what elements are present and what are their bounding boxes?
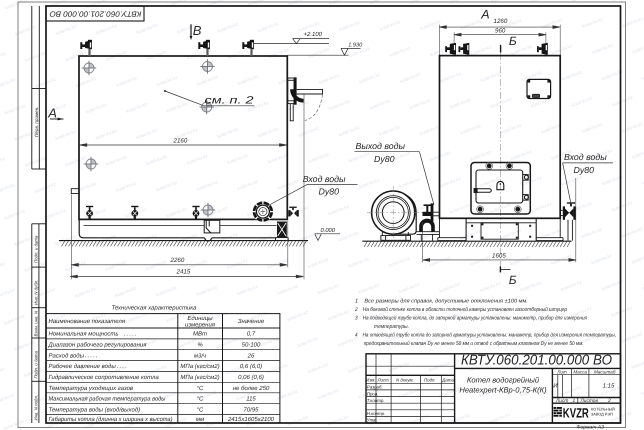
svg-text:4 На отводящей трубе котла: 4 На отводящей трубе котла до запорной а… (355, 333, 616, 339)
svg-text:предохранительный клапан Dy н: предохранительный клапан Dy не менее 50 … (364, 341, 584, 347)
svg-text:Н.контр.: Н.контр. (367, 411, 386, 416)
svg-text:Изм.: Изм. (366, 378, 375, 383)
svg-text:не более 250: не более 250 (233, 385, 270, 392)
svg-text:А: А (47, 105, 57, 120)
svg-text:Температура уходящих газов: Температура уходящих газов (49, 385, 134, 392)
svg-text:0,06 (0,6): 0,06 (0,6) (238, 374, 264, 381)
svg-text:Лист: Лист (555, 398, 568, 404)
svg-text:Лит: Лит (556, 369, 567, 374)
svg-text:Утв.: Утв. (367, 418, 377, 423)
svg-text:Dy80: Dy80 (574, 165, 595, 175)
svg-text:Т.контр.: Т.контр. (367, 398, 385, 403)
svg-text:Выход воды: Выход воды (356, 141, 406, 151)
svg-text:2260: 2260 (170, 257, 185, 264)
svg-text:°С: °С (197, 396, 204, 403)
svg-text:Максимальная рабочая температу: Максимальная рабочая температура воды (49, 396, 167, 403)
svg-text:°С: °С (197, 385, 204, 392)
svg-text:960: 960 (495, 27, 506, 34)
svg-text:Dy80: Dy80 (374, 154, 395, 164)
svg-text:Взам. инв. N: Взам. инв. N (34, 310, 39, 336)
svg-text:Дата: Дата (441, 378, 454, 383)
svg-text:КОТЕЛЬНЫЙ: КОТЕЛЬНЫЙ (591, 407, 615, 412)
svg-text:N докум.: N докум. (396, 378, 414, 383)
svg-text:KVZR: KVZR (563, 405, 589, 420)
svg-text:И: И (553, 383, 558, 390)
svg-text:Габариты котла (длинна х ширин: Габариты котла (длинна х ширина х высота… (49, 416, 173, 423)
svg-text:Подп.: Подп. (424, 378, 436, 383)
svg-text:Инв. N дубл.: Инв. N дубл. (34, 280, 39, 305)
svg-text:2 На боковой стенке котла в: 2 На боковой стенке котла в области топо… (354, 307, 567, 313)
svg-text:115: 115 (246, 396, 256, 403)
svg-text:50-100: 50-100 (242, 342, 261, 349)
svg-text:Единицы: Единицы (187, 315, 213, 322)
svg-text:м3/ч: м3/ч (194, 352, 206, 359)
svg-text:Формат А3: Формат А3 (577, 424, 605, 430)
svg-text:1.930: 1.930 (348, 42, 363, 48)
svg-text:Гидравлическое сопротивление к: Гидравлическое сопротивление котла (49, 374, 160, 381)
svg-text:0,7: 0,7 (247, 331, 256, 338)
svg-text:1:15: 1:15 (603, 383, 615, 390)
svg-text:26: 26 (247, 352, 255, 359)
svg-text:2415х1605х2100: 2415х1605х2100 (227, 416, 275, 423)
svg-text:ЗАВОД РЭП: ЗАВОД РЭП (591, 412, 613, 416)
svg-text:см. п. 2: см. п. 2 (205, 95, 254, 107)
svg-text:Значение: Значение (238, 318, 265, 325)
svg-text:3 На подводящей трубе кот: 3 На подводящей трубе котла, до запорной… (355, 316, 587, 322)
svg-text:Расход воды: Расход воды (49, 352, 85, 359)
svg-text:1 Все размеры для справок,: 1 Все размеры для справок, допустимые от… (355, 299, 528, 305)
svg-text:Номинальная мощность: Номинальная мощность (49, 331, 119, 338)
svg-text:°С: °С (197, 406, 204, 413)
svg-text:Масштаб: Масштаб (594, 369, 616, 374)
svg-text:В: В (193, 23, 202, 38)
svg-text:Heatexpert-КВр-0,75-К(К): Heatexpert-КВр-0,75-К(К) (459, 386, 547, 395)
svg-text:Техническая характеристика: Техническая характеристика (112, 305, 198, 312)
svg-text:0,6 (6,0): 0,6 (6,0) (240, 363, 262, 370)
svg-text:Подп. и дата: Подп. и дата (34, 235, 39, 263)
svg-text:мм: мм (196, 417, 204, 423)
svg-text:Рабочее давление воды: Рабочее давление воды (49, 363, 117, 370)
svg-text:Б: Б (509, 273, 517, 287)
svg-text:Б: Б (509, 34, 517, 48)
svg-text:А: А (480, 7, 489, 21)
svg-text:2415: 2415 (176, 269, 191, 276)
svg-text:1605: 1605 (492, 252, 506, 259)
svg-text:2160: 2160 (173, 138, 188, 145)
svg-text:+2.100: +2.100 (304, 31, 323, 38)
svg-text:Листов: Листов (580, 398, 599, 404)
svg-text:КВТУ.060.201.00.000 ВО: КВТУ.060.201.00.000 ВО (49, 9, 141, 18)
svg-text:2: 2 (607, 398, 611, 404)
svg-text:Температура воды (вход/выход): Температура воды (вход/выход) (49, 406, 141, 413)
svg-text:Подп. и дата: Подп. и дата (34, 350, 39, 378)
svg-text:Инв. N подл.: Инв. N подл. (34, 395, 39, 421)
svg-text:Наименование показателя: Наименование показателя (49, 318, 126, 325)
svg-text:0.000: 0.000 (321, 227, 336, 234)
svg-text:КВТУ.060.201.00.000 ВО: КВТУ.060.201.00.000 ВО (461, 353, 612, 369)
svg-text:МПа (кгс/см2): МПа (кгс/см2) (180, 363, 219, 370)
svg-text:Вход воды: Вход воды (303, 174, 346, 184)
svg-text:Разраб.: Разраб. (367, 385, 383, 390)
svg-text:%: % (197, 342, 203, 349)
svg-text:МВт: МВт (193, 331, 207, 338)
svg-text:Пров.: Пров. (367, 391, 379, 396)
svg-text:МПа (кгс/см2): МПа (кгс/см2) (180, 374, 219, 381)
svg-text:1260: 1260 (494, 18, 508, 25)
svg-text:Лист: Лист (377, 378, 390, 383)
svg-text:Вход воды: Вход воды (564, 152, 607, 162)
svg-text:Масса: Масса (573, 369, 587, 374)
svg-text:измерения: измерения (185, 323, 216, 329)
svg-text:Диапазон рабочего регулировани: Диапазон рабочего регулирования (48, 342, 148, 349)
svg-text:Котел водогрейный: Котел водогрейный (467, 376, 540, 385)
svg-text:Перв. примен.: Перв. примен. (34, 106, 39, 137)
svg-text:70/95: 70/95 (243, 406, 259, 413)
svg-text:температуры.: температуры. (374, 324, 409, 330)
svg-text:1: 1 (573, 398, 576, 404)
svg-text:Dy80: Dy80 (319, 187, 340, 197)
